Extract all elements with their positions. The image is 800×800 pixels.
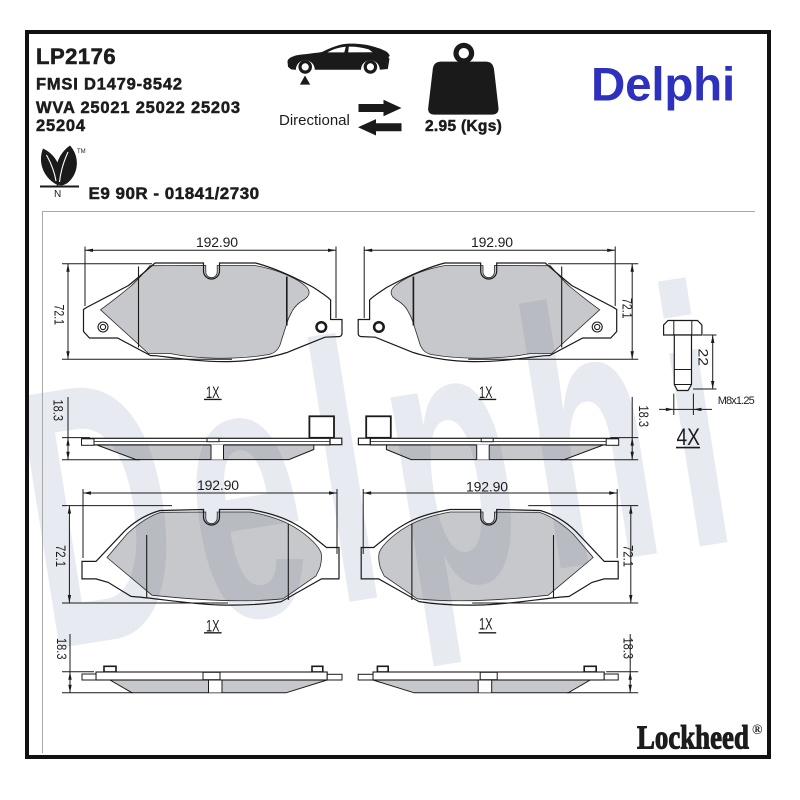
svg-text:22: 22: [696, 349, 712, 367]
svg-text:192.90: 192.90: [196, 234, 238, 250]
svg-text:4X: 4X: [677, 424, 701, 451]
svg-text:72.1: 72.1: [53, 545, 69, 567]
svg-text:72.1: 72.1: [52, 305, 68, 326]
svg-text:E9 90R - 01841/2730: E9 90R - 01841/2730: [89, 184, 260, 203]
svg-text:192.90: 192.90: [466, 479, 508, 495]
svg-text:FMSI D1479-8542: FMSI D1479-8542: [36, 76, 183, 94]
svg-text:1X: 1X: [206, 383, 220, 402]
svg-text:LP2176: LP2176: [36, 44, 116, 69]
svg-text:Directional: Directional: [279, 112, 350, 129]
svg-text:Delphi: Delphi: [0, 208, 771, 730]
svg-text:72.1: 72.1: [620, 298, 636, 319]
svg-text:18.3: 18.3: [54, 638, 70, 660]
svg-text:WVA 25021 25022 25203: WVA 25021 25022 25203: [36, 99, 241, 117]
svg-text:2.95 (Kgs): 2.95 (Kgs): [425, 118, 502, 135]
svg-text:TM: TM: [77, 149, 86, 155]
svg-text:192.90: 192.90: [197, 477, 239, 493]
svg-text:72.1: 72.1: [621, 545, 637, 567]
svg-text:18.3: 18.3: [621, 638, 637, 660]
svg-text:Delphi: Delphi: [591, 59, 735, 112]
svg-text:1X: 1X: [206, 616, 220, 635]
svg-text:1X: 1X: [479, 614, 493, 633]
svg-text:N: N: [54, 189, 61, 200]
svg-text:18.3: 18.3: [636, 406, 652, 428]
svg-text:18.3: 18.3: [51, 400, 67, 422]
svg-text:192.90: 192.90: [471, 234, 513, 250]
svg-text:M8x1.25: M8x1.25: [718, 395, 755, 407]
svg-text:25204: 25204: [36, 117, 86, 135]
svg-text:Lockheed: Lockheed: [637, 719, 749, 757]
svg-text:®: ®: [752, 723, 763, 738]
svg-text:1X: 1X: [479, 383, 493, 402]
